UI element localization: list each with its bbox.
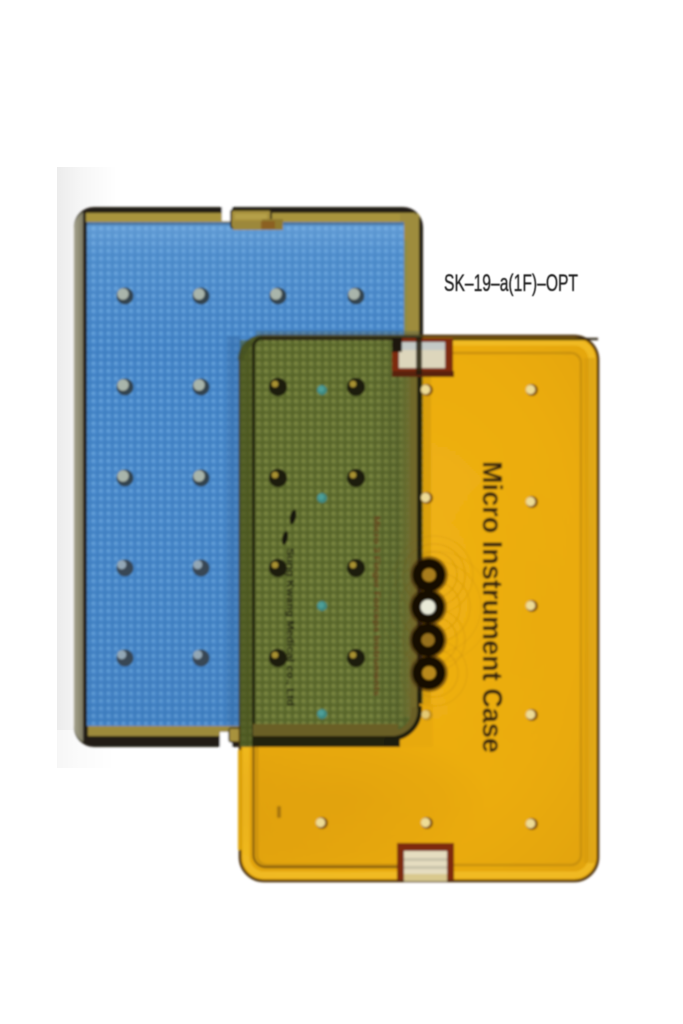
svg-text:Micro Instrument Case: Micro Instrument Case	[477, 461, 508, 753]
svg-text:SK–19–a(1F)–OPT: SK–19–a(1F)–OPT	[444, 270, 578, 297]
svg-text:Sung Kwang Medical co., Ltd: Sung Kwang Medical co., Ltd	[284, 548, 295, 706]
svg-text:Micro 3 Finger Forceps Instrum: Micro 3 Finger Forceps Instruments	[372, 516, 381, 697]
